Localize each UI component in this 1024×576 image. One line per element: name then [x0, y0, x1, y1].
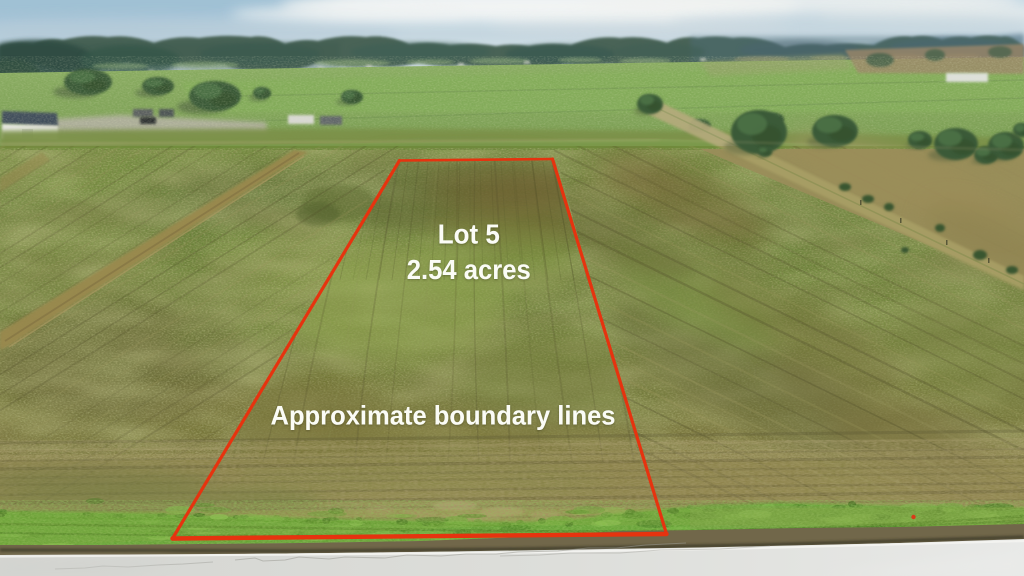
svg-text:Lot 5: Lot 5 — [438, 219, 500, 250]
svg-text:Approximate boundary lines: Approximate boundary lines — [271, 400, 616, 430]
svg-text:2.54 acres: 2.54 acres — [407, 254, 531, 285]
